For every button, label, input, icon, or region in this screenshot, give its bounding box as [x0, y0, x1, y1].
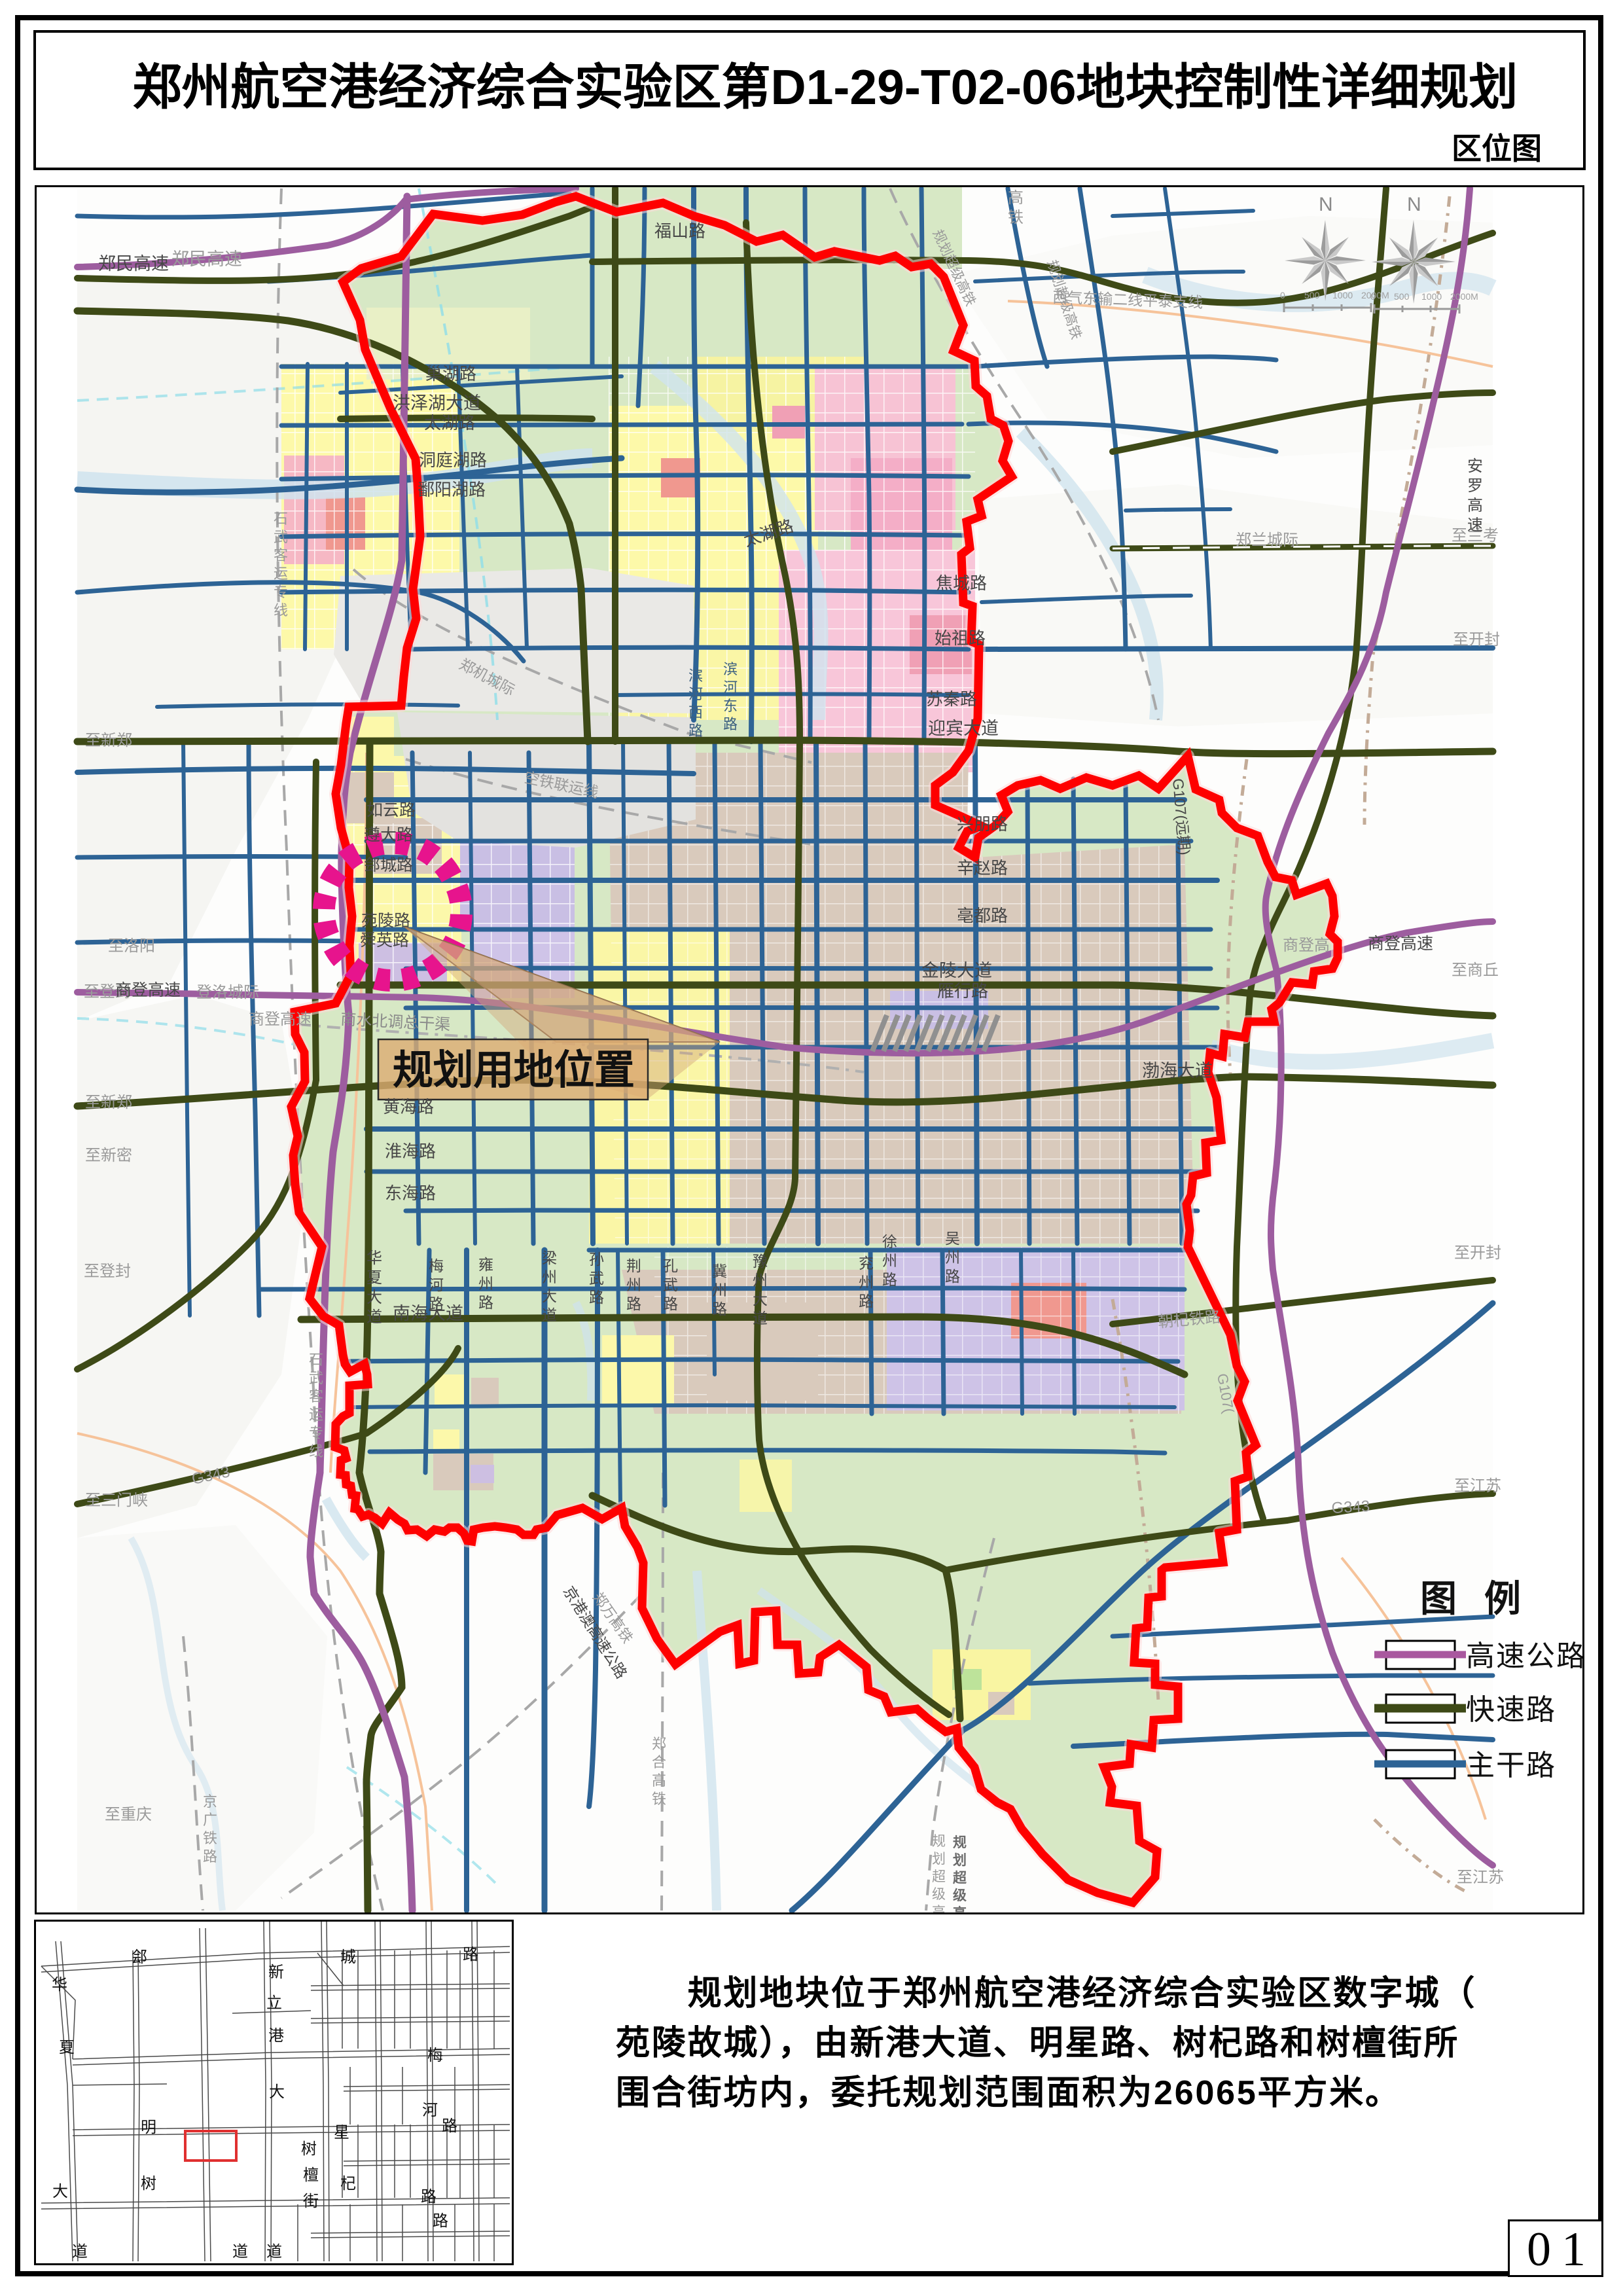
svg-text:港: 港	[268, 2027, 284, 2045]
svg-text:洞庭湖路: 洞庭湖路	[419, 450, 487, 470]
svg-text:商登高速: 商登高速	[249, 1011, 312, 1028]
svg-text:荆州路: 荆州路	[626, 1257, 641, 1312]
svg-text:黄海路: 黄海路	[383, 1097, 434, 1117]
svg-text:高速公路: 高速公路	[1466, 1640, 1582, 1672]
svg-text:明: 明	[141, 2119, 156, 2136]
svg-text:梅: 梅	[427, 2047, 443, 2064]
svg-text:夏: 夏	[59, 2039, 75, 2056]
svg-text:路: 路	[421, 2188, 437, 2206]
svg-text:淮海路: 淮海路	[385, 1141, 436, 1161]
svg-text:500: 500	[1394, 291, 1410, 302]
svg-text:至江苏: 至江苏	[1457, 1869, 1504, 1886]
svg-text:路: 路	[463, 1946, 478, 1964]
svg-text:冀州路: 冀州路	[712, 1263, 727, 1318]
svg-text:大: 大	[52, 2183, 68, 2200]
svg-text:立: 立	[266, 1994, 282, 2012]
svg-text:0: 0	[1280, 290, 1285, 300]
svg-text:树: 树	[301, 2140, 317, 2158]
svg-text:兖州路: 兖州路	[859, 1255, 874, 1310]
svg-text:至新密: 至新密	[85, 1147, 132, 1164]
svg-text:主干路: 主干路	[1466, 1749, 1556, 1782]
svg-text:图 例: 图 例	[1420, 1579, 1530, 1620]
svg-text:规划超级高铁: 规划超级高铁	[932, 1834, 946, 1912]
svg-text:徐州路: 徐州路	[882, 1233, 897, 1288]
svg-text:鄱阳湖路: 鄱阳湖路	[418, 480, 486, 499]
svg-text:洪泽湖大道: 洪泽湖大道	[393, 393, 481, 413]
svg-text:0: 0	[1370, 291, 1376, 302]
svg-text:郑民高速: 郑民高速	[98, 254, 169, 274]
svg-text:规划用地位置: 规划用地位置	[393, 1048, 635, 1093]
svg-text:孙武路: 孙武路	[589, 1251, 604, 1306]
svg-text:至江苏: 至江苏	[1454, 1477, 1501, 1495]
svg-text:巢湖路: 巢湖路	[425, 364, 476, 384]
svg-text:路: 路	[442, 2117, 457, 2135]
svg-text:苑陵路: 苑陵路	[361, 912, 410, 930]
svg-text:500: 500	[1304, 290, 1320, 300]
svg-text:至开封: 至开封	[1453, 631, 1500, 649]
svg-text:辛赵路: 辛赵路	[957, 858, 1008, 878]
svg-text:始祖路: 始祖路	[935, 628, 986, 648]
svg-text:至新郑: 至新郑	[85, 732, 132, 749]
svg-text:兴朋路: 兴朋路	[957, 814, 1008, 834]
svg-text:亳都路: 亳都路	[957, 906, 1008, 925]
svg-text:河: 河	[422, 2102, 438, 2119]
svg-text:舜英路: 舜英路	[360, 931, 409, 950]
svg-text:梅河路: 梅河路	[429, 1257, 444, 1312]
svg-text:迎宾大道: 迎宾大道	[928, 719, 999, 738]
svg-text:郐城路: 郐城路	[364, 856, 413, 874]
svg-text:孔武路: 孔武路	[663, 1257, 678, 1312]
svg-text:苏秦路: 苏秦路	[926, 689, 977, 709]
svg-text:雁行路: 雁行路	[937, 981, 988, 1001]
svg-text:快速路: 快速路	[1466, 1694, 1556, 1726]
svg-text:商登高速: 商登高速	[115, 981, 181, 999]
svg-text:南海大道: 南海大道	[393, 1304, 463, 1323]
svg-text:雍州路: 雍州路	[478, 1256, 493, 1311]
svg-text:2000M: 2000M	[1450, 291, 1478, 302]
svg-text:1000: 1000	[1421, 291, 1442, 302]
svg-text:至三门峡: 至三门峡	[85, 1492, 148, 1509]
svg-text:杞: 杞	[340, 2175, 356, 2193]
svg-text:大: 大	[269, 2083, 285, 2101]
svg-text:至洛阳: 至洛阳	[108, 937, 155, 955]
svg-text:星: 星	[334, 2124, 349, 2142]
svg-text:道: 道	[72, 2243, 88, 2261]
svg-text:道: 道	[266, 2243, 282, 2261]
svg-text:路: 路	[433, 2212, 448, 2230]
svg-text:华: 华	[52, 1976, 67, 1994]
svg-text:商登高: 商登高	[1283, 937, 1330, 954]
svg-text:1000: 1000	[1332, 290, 1353, 300]
svg-text:树: 树	[141, 2175, 156, 2193]
svg-text:郑兰城际: 郑兰城际	[1236, 531, 1298, 549]
svg-text:如云路: 如云路	[366, 801, 416, 819]
svg-text:至登封: 至登封	[84, 1263, 131, 1280]
svg-text:郑民高速: 郑民高速	[171, 249, 242, 269]
svg-text:G343: G343	[1331, 1498, 1370, 1517]
svg-text:至开封: 至开封	[1454, 1244, 1501, 1262]
svg-text:渤海大道: 渤海大道	[1142, 1061, 1213, 1081]
svg-text:吴州路: 吴州路	[945, 1230, 960, 1285]
svg-text:金陵大道: 金陵大道	[921, 961, 992, 980]
svg-text:商登高速: 商登高速	[1368, 935, 1433, 953]
svg-text:檀: 檀	[303, 2166, 319, 2184]
svg-text:至重庆: 至重庆	[105, 1806, 152, 1823]
svg-text:至商丘: 至商丘	[1452, 961, 1499, 979]
svg-text:东海路: 东海路	[385, 1183, 436, 1203]
svg-text:郐: 郐	[132, 1948, 147, 1966]
svg-text:城: 城	[340, 1948, 356, 1966]
svg-text:规划超级高铁: 规划超级高铁	[953, 1835, 967, 1912]
svg-text:太湖路: 太湖路	[424, 413, 475, 433]
svg-text:焦城路: 焦城路	[936, 573, 987, 593]
svg-text:新: 新	[268, 1964, 284, 1981]
svg-text:福山路: 福山路	[654, 221, 705, 241]
svg-text:N: N	[1407, 194, 1421, 215]
svg-text:登洛城际: 登洛城际	[196, 984, 259, 1001]
svg-text:N: N	[1319, 194, 1333, 215]
svg-text:道: 道	[232, 2243, 248, 2261]
svg-text:遵大路: 遵大路	[364, 826, 413, 844]
svg-text:街: 街	[303, 2193, 319, 2210]
svg-text:至新郑: 至新郑	[85, 1094, 132, 1111]
